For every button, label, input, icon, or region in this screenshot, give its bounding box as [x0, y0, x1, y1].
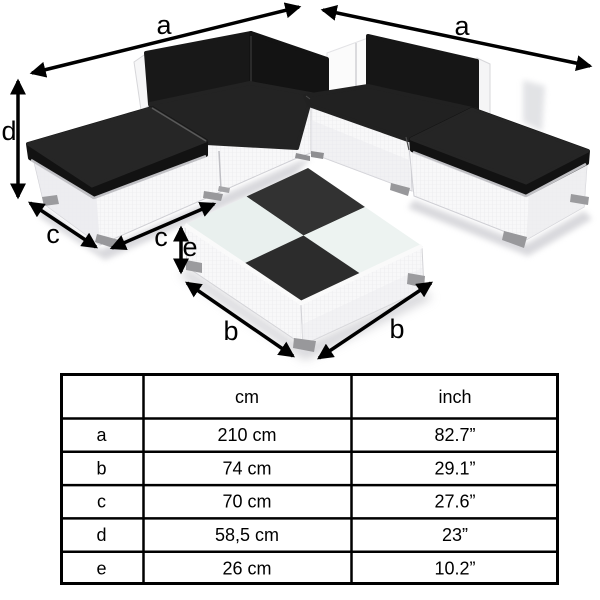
svg-text:d: d: [1, 116, 16, 146]
svg-text:58,5 cm: 58,5 cm: [215, 525, 279, 545]
svg-text:a: a: [156, 10, 172, 40]
svg-text:26 cm: 26 cm: [222, 558, 271, 578]
svg-text:29.1”: 29.1”: [434, 458, 475, 478]
svg-text:cm: cm: [235, 387, 259, 407]
svg-text:10.2”: 10.2”: [434, 558, 475, 578]
svg-text:210 cm: 210 cm: [217, 425, 276, 445]
svg-text:27.6”: 27.6”: [434, 492, 475, 512]
svg-text:82.7”: 82.7”: [434, 425, 475, 445]
svg-text:b: b: [223, 316, 238, 346]
svg-text:a: a: [96, 425, 107, 445]
svg-text:74 cm: 74 cm: [222, 458, 271, 478]
svg-text:b: b: [389, 314, 404, 344]
svg-text:c: c: [154, 222, 168, 252]
svg-text:c: c: [97, 492, 106, 512]
svg-text:b: b: [96, 458, 106, 478]
svg-text:a: a: [454, 11, 470, 41]
svg-text:c: c: [46, 219, 60, 249]
svg-text:23”: 23”: [442, 525, 468, 545]
svg-text:70 cm: 70 cm: [222, 492, 271, 512]
svg-text:e: e: [182, 232, 197, 262]
svg-text:e: e: [96, 558, 106, 578]
svg-text:d: d: [96, 525, 106, 545]
svg-text:inch: inch: [438, 387, 471, 407]
